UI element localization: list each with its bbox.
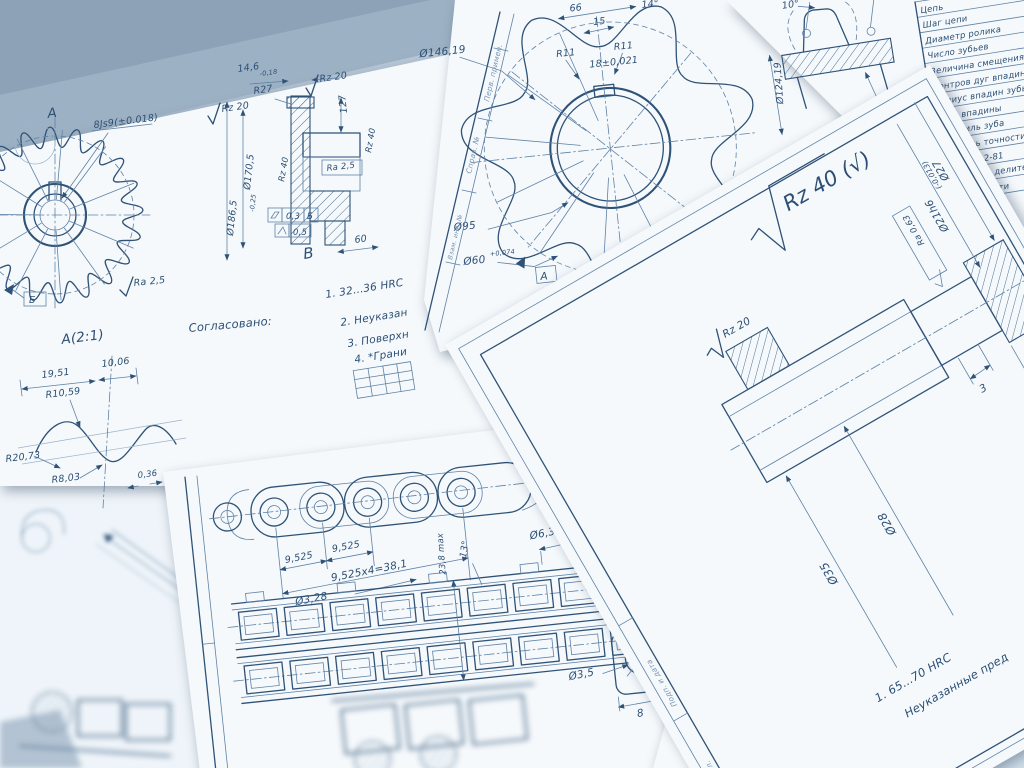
tolerance-row1-value: 0,3 — [286, 212, 300, 222]
angle-14: 14° — [641, 0, 660, 11]
rad-11-right: R11 — [613, 40, 633, 53]
dia-60: Ø60 — [462, 254, 486, 268]
view-label-a: A — [46, 105, 58, 122]
datum-flag-label: Б — [29, 295, 36, 306]
tolerance-row2-value: 0,5 — [293, 228, 307, 238]
dim-66: 66 — [569, 2, 583, 14]
dim-15: 15 — [593, 16, 607, 28]
section-label-a: A — [539, 270, 549, 283]
rad-11-left: R11 — [556, 47, 576, 60]
dim-60: 60 — [354, 233, 368, 246]
photo-of-blueprints: A 8Js9(±0.018) Ra 2,5 Б — [0, 0, 1024, 768]
tolerance-row1-datum: Б — [307, 212, 313, 222]
dim-127: 127 — [337, 94, 350, 114]
